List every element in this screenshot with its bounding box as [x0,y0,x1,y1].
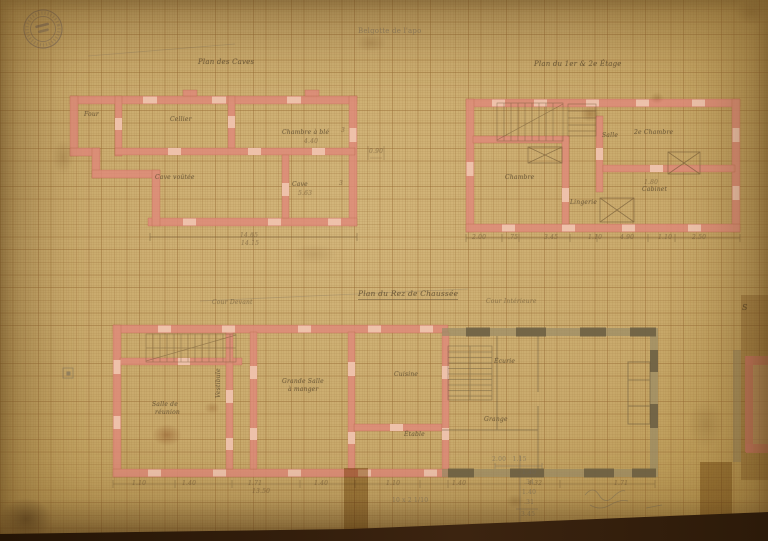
dim-440: 4.40 [304,139,318,145]
room-cave: Cave [292,182,308,188]
dim-p3-2: 1.40 [182,481,196,487]
handwritten-labels: Belgotte de l'apoPlan des CavesPlan du 1… [0,0,768,541]
dim-1415: 14.15 [241,241,259,247]
dim-p3-6: 1.40 [452,481,466,487]
pencil-col-1: 1.40 [522,470,536,476]
room-chambre: Chambre [505,175,534,181]
dim-p2-2: .75 [508,235,518,241]
dim-p3-1: 1.10 [132,481,146,487]
room-salle: Salle [602,133,618,139]
pencil-col-4: .31 [524,500,534,506]
note-cour-interieure: Cour Intérieure [486,299,537,305]
dim-p2-1: 2.00 [472,235,486,241]
pencil-note-top: Belgotte de l'apo [358,28,422,35]
dim-p3-4: 1.40 [314,481,328,487]
room-etable: Étable [404,432,425,438]
room-vestibule: Vestibule [216,368,222,398]
dim-090: 0.90 [369,149,383,155]
dim-180: 1.80 [644,180,658,186]
plan-sheet: Belgotte de l'apoPlan des CavesPlan du 1… [0,0,768,541]
room-grange: Grange [484,417,508,423]
pencil-dim-200-115: 2.00 1.15 [492,457,527,463]
room-reunion: réunion [155,410,180,416]
pencil-col-2: .34 [524,480,534,486]
room-ecurie: Écurie [494,359,515,365]
note-cour-devant: Cour Devant [212,300,253,306]
dim-p3-5: 1.10 [386,481,400,487]
dim-p3-8: 1.71 [614,481,628,487]
pencil-col-sum: 3.45 [521,512,535,518]
room-lingerie: Lingerie [570,200,597,206]
plan-caves-title: Plan des Caves [198,59,254,66]
room-four: Four [84,112,99,118]
dim-p2-6: 1.10 [658,235,672,241]
dim-1350: 13.50 [252,489,270,495]
dim-p2-5: 4.90 [620,235,634,241]
dim-3b: 3 [339,181,343,187]
dim-p2-3: 3.45 [544,235,558,241]
dim-563: 5.63 [298,191,312,197]
dim-1465: 14.65 [240,233,258,239]
pencil-col-3: 1.40 [522,490,536,496]
dim-3a: 3 [341,128,345,134]
dim-p3-3: 1.71 [248,481,262,487]
plan-etage-title: Plan du 1er & 2e Étage [534,61,622,68]
room-chambre-ble: Chambre à blé [282,130,329,136]
room-salle-de: Salle de [152,402,178,408]
room-cabinet: Cabinet [642,187,667,193]
room-grande-salle: Grande Salle [282,379,324,385]
plan-rdc-title: Plan du Rez de Chaussée [358,290,458,300]
dim-p2-4: 1.10 [588,235,602,241]
pencil-note-10x2: 10 x 2 1/10 [392,498,428,504]
room-cellier: Cellier [170,117,192,123]
room-a-manger: à manger [288,387,318,393]
room-2e-chambre: 2e Chambre [634,130,673,136]
room-cuisine: Cuisine [394,372,418,378]
letter-s: S [742,304,748,312]
dim-p2-7: 2.50 [692,235,706,241]
room-cave-voutee: Cave voûtée [155,175,195,181]
